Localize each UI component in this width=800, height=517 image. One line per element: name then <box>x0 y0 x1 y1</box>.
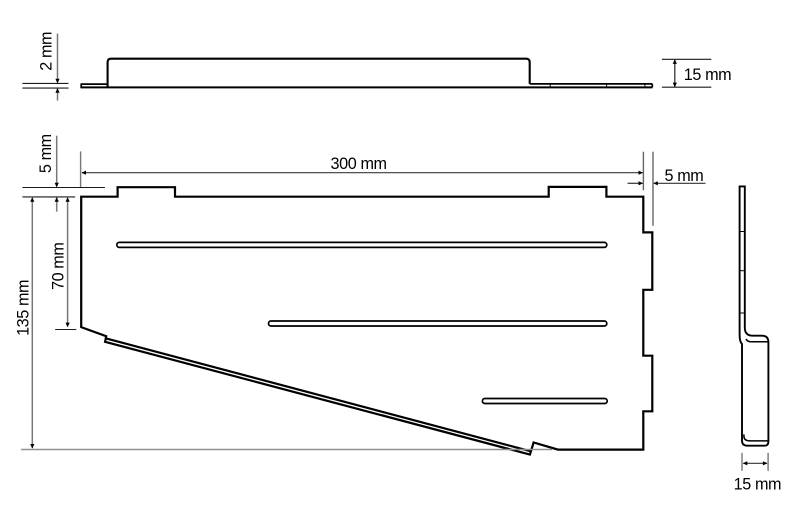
svg-text:15 mm: 15 mm <box>734 476 781 494</box>
svg-text:2 mm: 2 mm <box>38 32 56 71</box>
svg-text:5 mm: 5 mm <box>665 167 704 185</box>
svg-text:300 mm: 300 mm <box>331 155 387 173</box>
svg-text:5 mm: 5 mm <box>37 134 55 173</box>
svg-text:15 mm: 15 mm <box>684 66 731 84</box>
svg-text:135 mm: 135 mm <box>15 280 33 336</box>
svg-text:70 mm: 70 mm <box>50 243 68 290</box>
